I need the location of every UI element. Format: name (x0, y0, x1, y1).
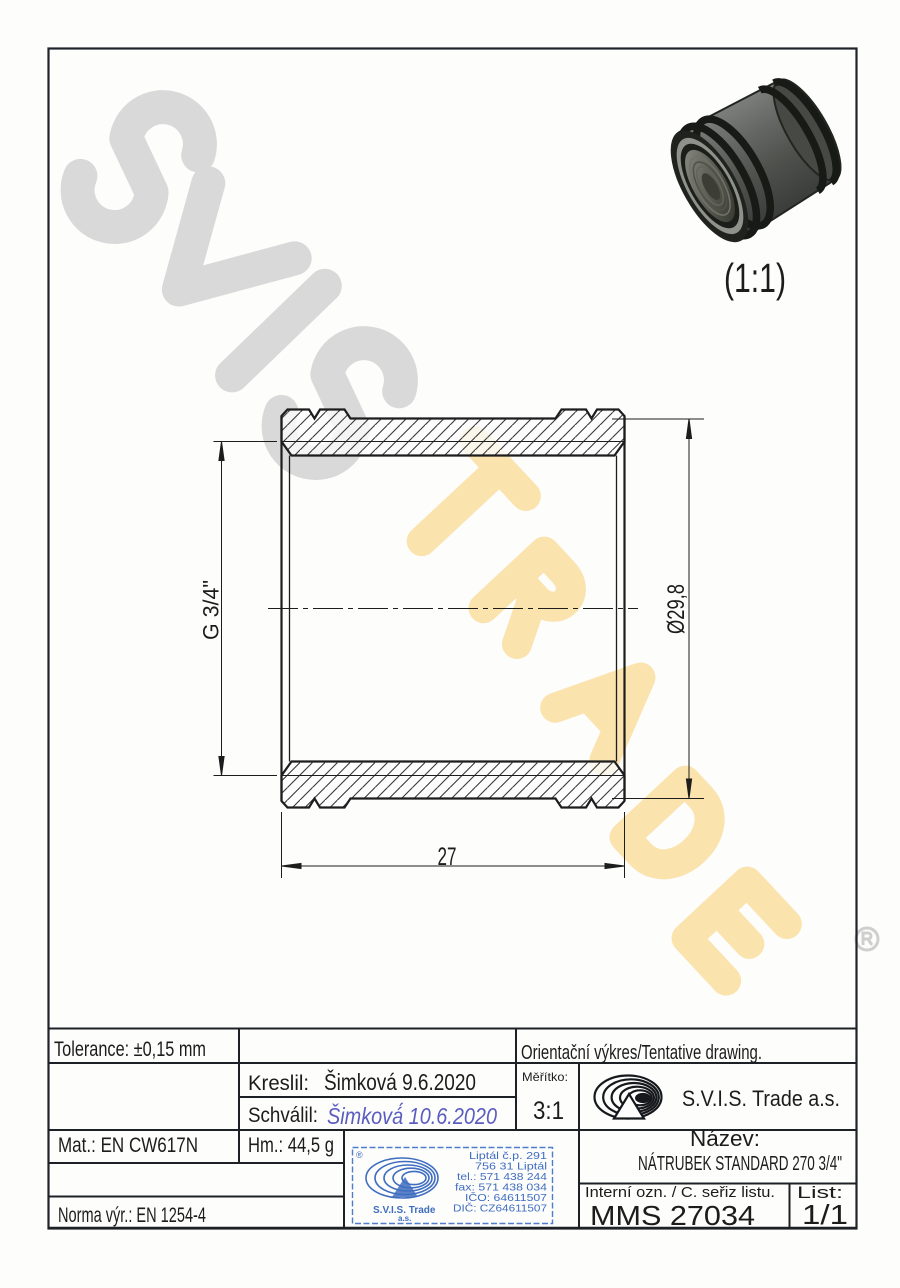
svg-text:NÁTRUBEK STANDARD 270 3/4": NÁTRUBEK STANDARD 270 3/4" (638, 1152, 842, 1175)
svg-text:27: 27 (438, 843, 457, 871)
svg-text:Název:: Název: (690, 1126, 760, 1151)
svg-text:DIČ: CZ64611507: DIČ: CZ64611507 (453, 1202, 547, 1215)
svg-text:3:1: 3:1 (533, 1097, 564, 1125)
svg-text:Ø29,8: Ø29,8 (663, 584, 690, 634)
svg-text:Mat.: EN CW617N: Mat.: EN CW617N (58, 1134, 198, 1157)
svg-text:Kreslil:: Kreslil: (248, 1072, 309, 1095)
svg-text:Norma výr.: EN 1254-4: Norma výr.: EN 1254-4 (58, 1204, 206, 1227)
svg-text:a.s.: a.s. (398, 1214, 411, 1223)
svg-text:Měřítko:: Měřítko: (522, 1070, 568, 1084)
svg-text:Šimková 9.6.2020: Šimková 9.6.2020 (324, 1068, 476, 1095)
svg-text:Schválil:: Schválil: (248, 1104, 318, 1127)
svg-text:Interní ozn. / C. seřiz listu.: Interní ozn. / C. seřiz listu. (585, 1184, 775, 1201)
svg-text:Šimková́ 10.6.2020: Šimková́ 10.6.2020 (327, 1102, 497, 1129)
svg-text:(1:1): (1:1) (724, 255, 786, 301)
svg-text:Tolerance: ±0,15 mm: Tolerance: ±0,15 mm (54, 1038, 206, 1061)
svg-text:MMS 27034: MMS 27034 (590, 1200, 755, 1231)
svg-text:®: ® (356, 1150, 363, 1160)
svg-text:S.V.I.S. Trade a.s.: S.V.I.S. Trade a.s. (682, 1086, 840, 1111)
svg-text:1/1: 1/1 (802, 1199, 848, 1230)
svg-text:Hm.: 44,5 g: Hm.: 44,5 g (248, 1134, 334, 1157)
svg-text:Orientační výkres/Tentative dr: Orientační výkres/Tentative drawing. (521, 1042, 762, 1064)
svg-text:G 3/4": G 3/4" (199, 580, 224, 640)
